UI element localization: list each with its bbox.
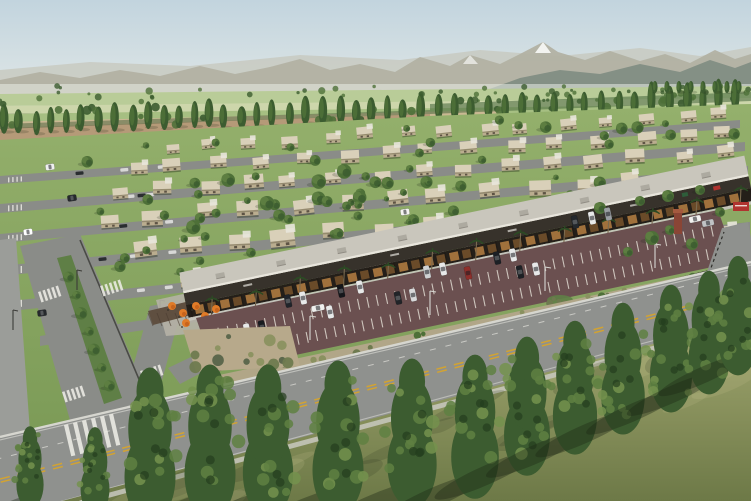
- car: [67, 194, 77, 201]
- house: [638, 131, 658, 147]
- shrub: [421, 332, 426, 337]
- shrub: [226, 334, 231, 339]
- distant-tree: [611, 88, 616, 93]
- car: [400, 208, 410, 215]
- distant-tree: [562, 84, 566, 88]
- house: [101, 215, 120, 230]
- distant-tree: [474, 92, 479, 97]
- house: [625, 148, 645, 164]
- distant-tree: [494, 91, 497, 94]
- house: [681, 110, 697, 124]
- house: [529, 180, 551, 198]
- storefront-window: [398, 262, 409, 272]
- patio-chair: [191, 309, 193, 311]
- crosswalk-dash: [21, 234, 22, 240]
- car: [37, 309, 47, 316]
- distant-tree: [572, 91, 576, 95]
- distant-tree: [95, 94, 102, 101]
- distant-tree: [198, 88, 202, 92]
- house: [112, 187, 128, 200]
- storefront-window: [449, 251, 460, 261]
- shrub: [277, 341, 287, 351]
- parked-car: [75, 171, 83, 175]
- distant-tree: [318, 87, 325, 94]
- distant-tree: [87, 92, 90, 95]
- house: [166, 144, 179, 155]
- patio-chair: [167, 309, 169, 311]
- shrub: [215, 345, 221, 351]
- distant-tree: [482, 86, 487, 91]
- car: [45, 163, 55, 170]
- shrub: [212, 354, 224, 366]
- parked-car: [120, 168, 128, 172]
- shrub: [191, 351, 200, 360]
- shrub: [282, 357, 293, 368]
- patio-chair: [211, 312, 213, 314]
- distant-tree: [296, 91, 299, 94]
- patio-chair: [178, 316, 180, 318]
- storefront-window: [245, 293, 256, 303]
- entry-monument: [674, 212, 682, 234]
- house: [162, 158, 181, 173]
- distant-tree: [521, 84, 527, 90]
- storefront-window: [627, 214, 638, 224]
- crosswalk-dash: [16, 235, 17, 241]
- storefront-window: [347, 272, 358, 282]
- crosswalk-dash: [16, 205, 17, 211]
- shrub: [189, 361, 201, 373]
- crosswalk-dash: [21, 266, 22, 273]
- storefront-window: [220, 299, 231, 309]
- shrub: [264, 334, 276, 346]
- house: [680, 129, 697, 143]
- distant-tree: [372, 85, 375, 88]
- distant-tree: [496, 98, 501, 103]
- distant-tree: [407, 107, 415, 115]
- house: [455, 165, 472, 178]
- crosswalk-dash: [21, 176, 22, 181]
- storefront-window: [551, 230, 562, 240]
- storefront-window: [525, 235, 536, 245]
- storefront-window: [271, 288, 282, 298]
- distant-tree: [542, 99, 545, 102]
- distant-tree: [59, 86, 62, 89]
- distant-tree: [57, 91, 61, 95]
- distant-tree: [150, 95, 154, 99]
- red-billboard: [733, 202, 749, 211]
- parked-car: [119, 224, 127, 228]
- shrub: [256, 358, 264, 366]
- aerial-rendering: Aerial 3D architectural rendering of a d…: [0, 0, 751, 501]
- storefront-window: [500, 241, 511, 251]
- house: [583, 154, 603, 171]
- shrub: [243, 358, 249, 364]
- distant-tree: [55, 106, 63, 114]
- shrub: [310, 357, 316, 363]
- distant-tree: [36, 95, 42, 101]
- crosswalk-dash: [21, 204, 22, 210]
- crosswalk-dash: [8, 205, 9, 211]
- crosswalk-dash: [12, 177, 13, 182]
- distant-tree: [247, 92, 253, 98]
- distant-tree: [332, 86, 338, 92]
- distant-tree: [546, 98, 549, 101]
- distant-tree: [302, 88, 307, 93]
- distant-tree: [138, 114, 144, 120]
- house: [435, 125, 452, 139]
- crosswalk-dash: [12, 205, 13, 211]
- distant-tree: [139, 99, 144, 104]
- car: [23, 228, 33, 235]
- shrub: [552, 297, 556, 301]
- crosswalk-dash: [16, 177, 17, 182]
- distant-tree: [627, 89, 631, 93]
- distant-tree: [570, 89, 573, 92]
- storefront-window: [704, 199, 715, 209]
- crosswalk-dash: [8, 177, 9, 182]
- storefront-window: [322, 278, 333, 288]
- distant-tree: [151, 103, 160, 112]
- parked-car: [165, 220, 173, 224]
- shrub: [585, 294, 590, 299]
- storefront-window: [373, 267, 384, 277]
- distant-tree: [439, 89, 443, 93]
- shrub: [248, 352, 254, 358]
- storefront-window: [729, 193, 740, 203]
- distant-tree: [146, 87, 153, 94]
- patio-chair: [181, 326, 183, 328]
- house: [341, 150, 360, 165]
- scene-canvas: [0, 0, 751, 501]
